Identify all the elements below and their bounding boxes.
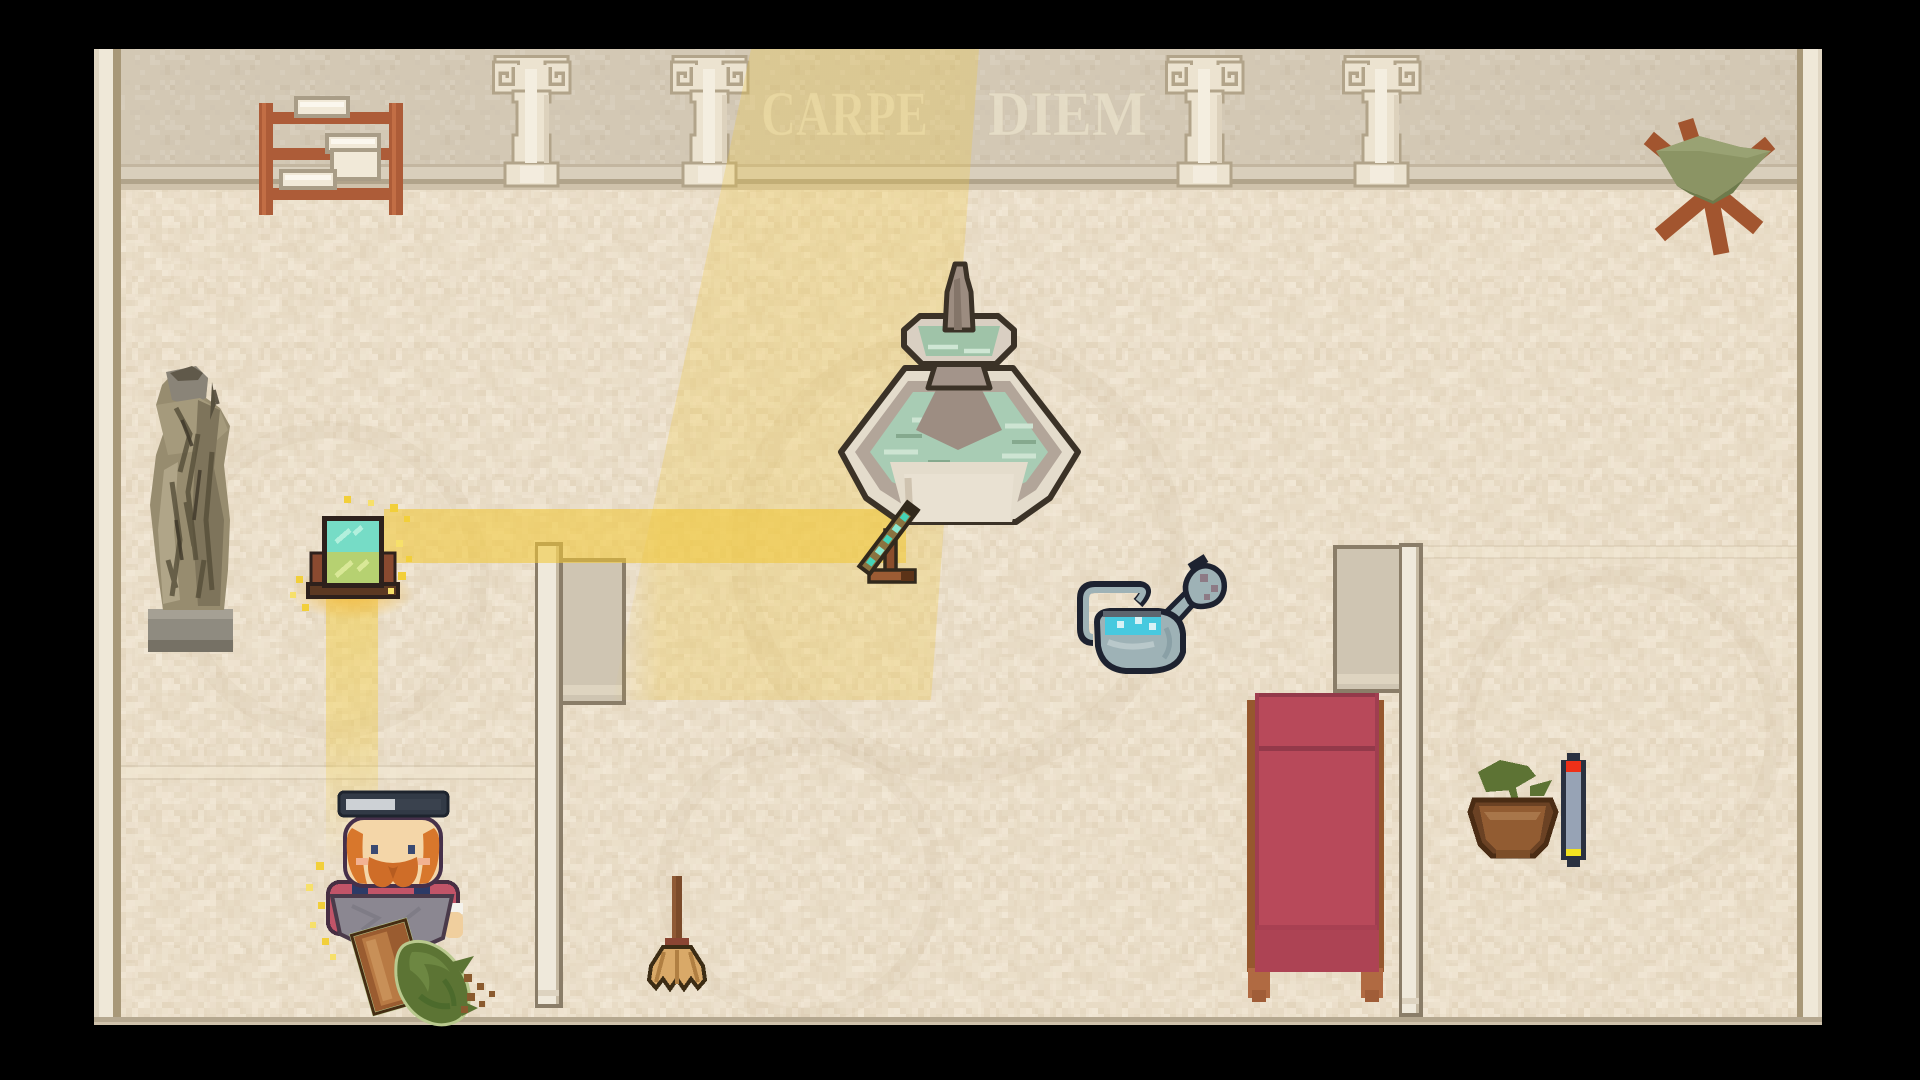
svg-text:DIEM: DIEM — [988, 78, 1147, 149]
